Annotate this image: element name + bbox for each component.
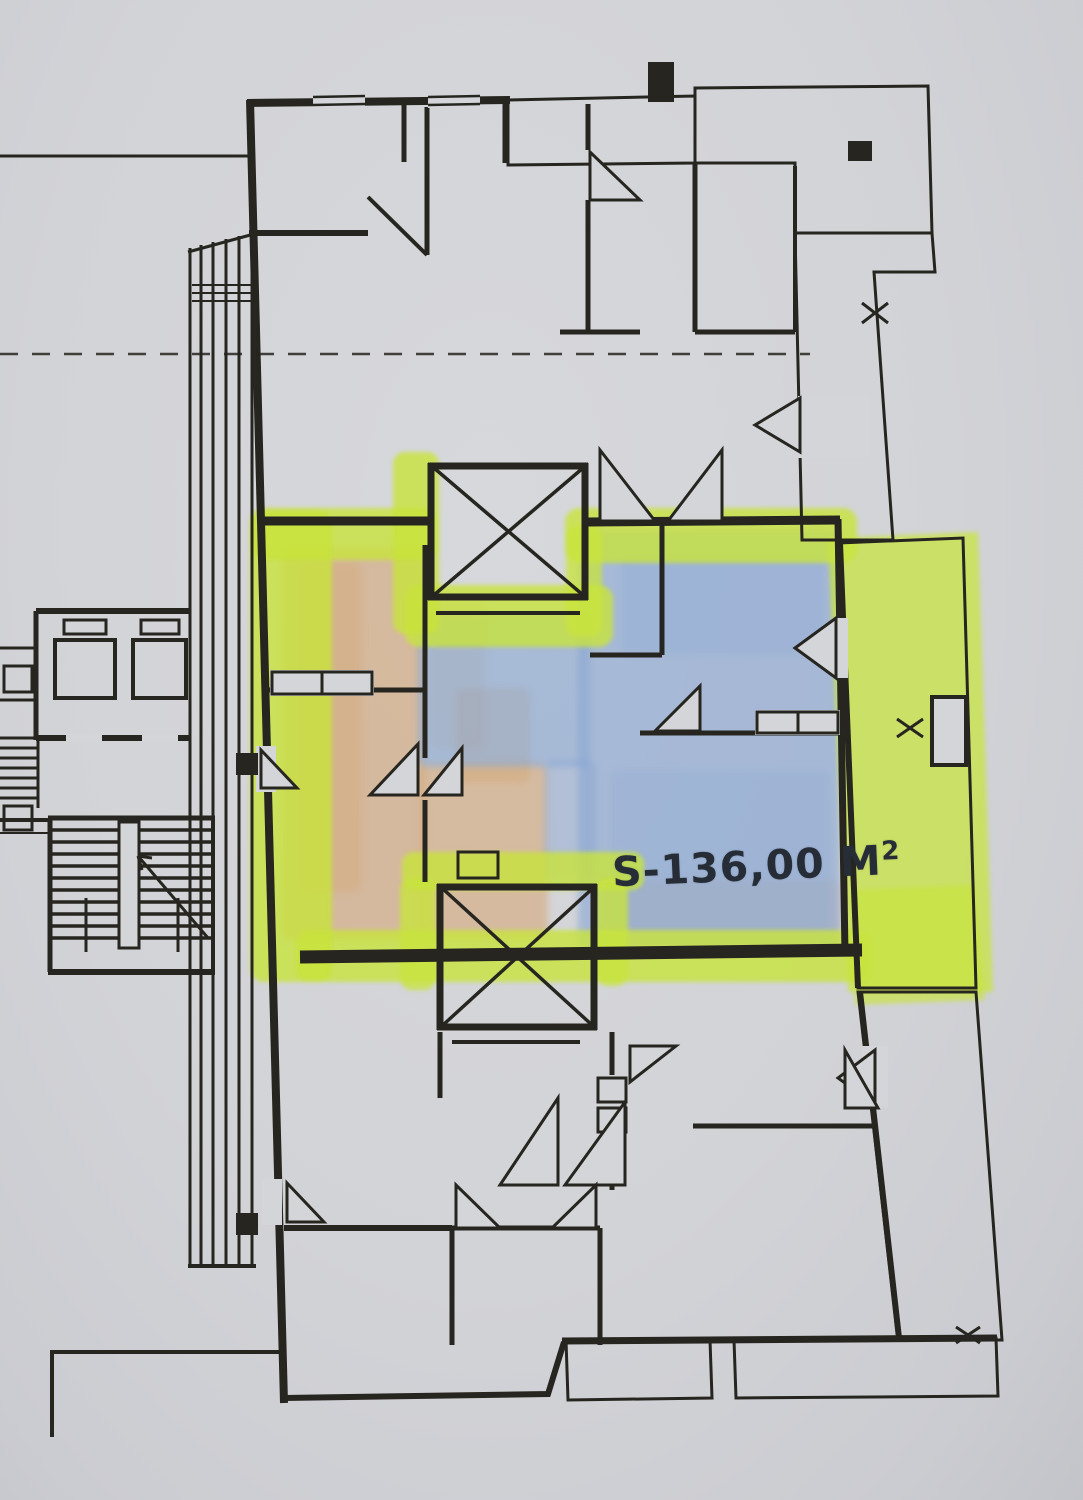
area-label-exponent: 2 (881, 836, 900, 867)
floor-plan-drawing (0, 0, 1083, 1500)
stair-core (0, 611, 215, 972)
gallery-railing (188, 234, 258, 1266)
floor-plan-photo: S-136,00 M2 (0, 0, 1083, 1500)
elevator-2 (133, 640, 186, 698)
upper-apartment-walls (249, 92, 795, 332)
elevator-1 (55, 640, 115, 698)
lower-apartment-walls (284, 1032, 877, 1345)
